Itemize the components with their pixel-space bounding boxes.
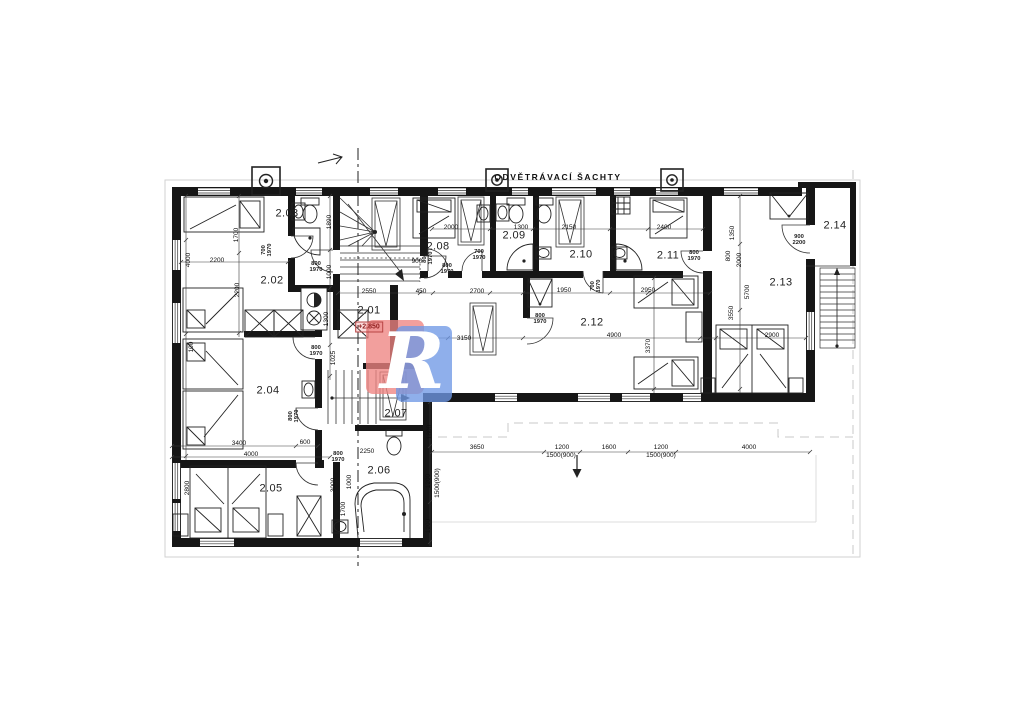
room-label-2-12: 2.12: [580, 318, 603, 329]
double-bed: [701, 325, 803, 393]
double-bed: [173, 466, 283, 538]
room-label-2-14: 2.14: [823, 221, 846, 232]
dim-label: 4000: [244, 452, 258, 459]
dim-label: 1000: [327, 265, 334, 279]
dim-label: 2700: [470, 289, 484, 296]
dim-label: 1350: [730, 226, 737, 240]
dim-label: 2250: [360, 449, 374, 456]
room-label-2-04: 2.04: [256, 386, 279, 397]
dim-label: 3550: [729, 306, 736, 320]
door-size-label: 8001970: [310, 345, 323, 357]
room-label-2-02: 2.02: [260, 276, 283, 287]
wardrobe-icon: [297, 496, 321, 536]
dim-label: 450: [416, 289, 427, 296]
dim-label: 2900: [765, 333, 779, 340]
dim-label: 100: [189, 342, 196, 353]
window-icon: [458, 197, 484, 245]
dim-label: 1200: [555, 445, 569, 452]
dim-label: 1500(900): [646, 453, 676, 460]
sink-icon: [496, 204, 509, 221]
room-label-2-09: 2.09: [502, 231, 525, 242]
dim-label: 1025: [331, 351, 338, 365]
bed: [650, 198, 687, 238]
plan-title: ODVĚTRÁVACÍ ŠACHTY: [494, 173, 621, 182]
room-label-2-06: 2.06: [367, 466, 390, 477]
logo-letter: R: [378, 316, 445, 407]
toilet-icon: [507, 198, 525, 223]
dim-label: 3150: [457, 336, 471, 343]
door-size-label: 8001970: [422, 252, 434, 265]
dim-label: 1950: [557, 288, 571, 295]
dim-label: 3370: [646, 339, 653, 353]
dim-label: 3000: [331, 478, 338, 492]
room-label-2-01: 2.01: [357, 306, 380, 317]
dim-label: 1800: [427, 425, 434, 439]
door-size-label: 8001970: [332, 451, 345, 463]
dim-label: 3650: [470, 445, 484, 452]
dim-label: 2800: [185, 481, 192, 495]
door-size-label: 8001970: [288, 410, 300, 423]
bed: [413, 198, 455, 238]
dim-label: 2400: [657, 225, 671, 232]
bed: [634, 357, 698, 389]
dim-label: 3400: [232, 441, 246, 448]
dim-label: 1000: [347, 475, 354, 489]
dim-label: 1700: [234, 228, 241, 242]
door-size-label: 8001970: [441, 263, 454, 275]
room-label-2-07: 2.07: [384, 409, 407, 420]
staircase-main: [340, 198, 420, 282]
floor-plan-drawing: R: [0, 0, 1024, 724]
nightstand: [686, 312, 702, 342]
dim-label: 2150: [562, 225, 576, 232]
dim-label: 5700: [745, 285, 752, 299]
window-icon: [470, 303, 496, 355]
dim-label: 1300: [514, 225, 528, 232]
window-icon: [372, 198, 400, 250]
bed: [184, 197, 264, 232]
room-label-2-10: 2.10: [569, 250, 592, 261]
dim-label: 800: [726, 251, 733, 262]
dim-label: 1200: [426, 519, 433, 533]
dim-label: 1700: [341, 502, 348, 516]
dim-label: 1200: [426, 474, 433, 488]
dim-label: 1300: [324, 312, 331, 326]
roof-outline-dashed: [438, 170, 853, 560]
room-label-2-11: 2.11: [657, 251, 679, 262]
dim-label: 1500(900): [546, 453, 576, 460]
dim-label: 1500(900): [435, 468, 442, 498]
dim-label: 2000: [444, 225, 458, 232]
shower-icon: [616, 244, 642, 270]
elevation-marker: +2.850: [355, 322, 383, 333]
shower-icon: [293, 228, 320, 255]
dim-label: 600: [300, 440, 311, 447]
dim-label: 4900: [607, 333, 621, 340]
dim-label: 2000: [737, 253, 744, 267]
door-size-label: 7001970: [473, 249, 486, 261]
dim-label: 2950: [641, 288, 655, 295]
door-size-label: 7001970: [590, 280, 602, 293]
corner-bathtub-icon: [355, 483, 410, 538]
window-icon: [556, 197, 584, 247]
room-label-2-03: 2.03: [275, 209, 298, 220]
section-mark: [318, 154, 342, 164]
dim-label: 1890: [327, 215, 334, 229]
door-size-label: 8001970: [688, 250, 701, 262]
toilet-icon: [301, 198, 319, 223]
door-size-label: 8001970: [310, 261, 323, 273]
door-swing: [296, 463, 318, 485]
room-label-2-05: 2.05: [259, 484, 282, 495]
door-size-label: 9002200: [793, 234, 806, 246]
dim-label: 900: [412, 259, 423, 266]
toilet-icon: [386, 430, 402, 455]
dim-label: 2200: [210, 258, 224, 265]
door-size-label: 7001970: [261, 244, 273, 257]
door-size-label: 8001970: [534, 313, 547, 325]
dim-label: 4000: [186, 253, 193, 267]
floor-plan-page: R ODVĚTRÁVACÍ ŠACHTY +2.850 2.01 2.02 2.…: [0, 0, 1024, 724]
dim-label: 1200: [654, 445, 668, 452]
sink-icon: [302, 381, 315, 398]
wardrobe-icon: [770, 193, 808, 219]
room-label-2-13: 2.13: [769, 278, 792, 289]
dim-label: 1600: [602, 445, 616, 452]
dim-label: 2550: [362, 289, 376, 296]
dim-label: 2200: [235, 283, 242, 297]
dim-label: 4000: [742, 445, 756, 452]
shower-icon: [507, 244, 533, 270]
